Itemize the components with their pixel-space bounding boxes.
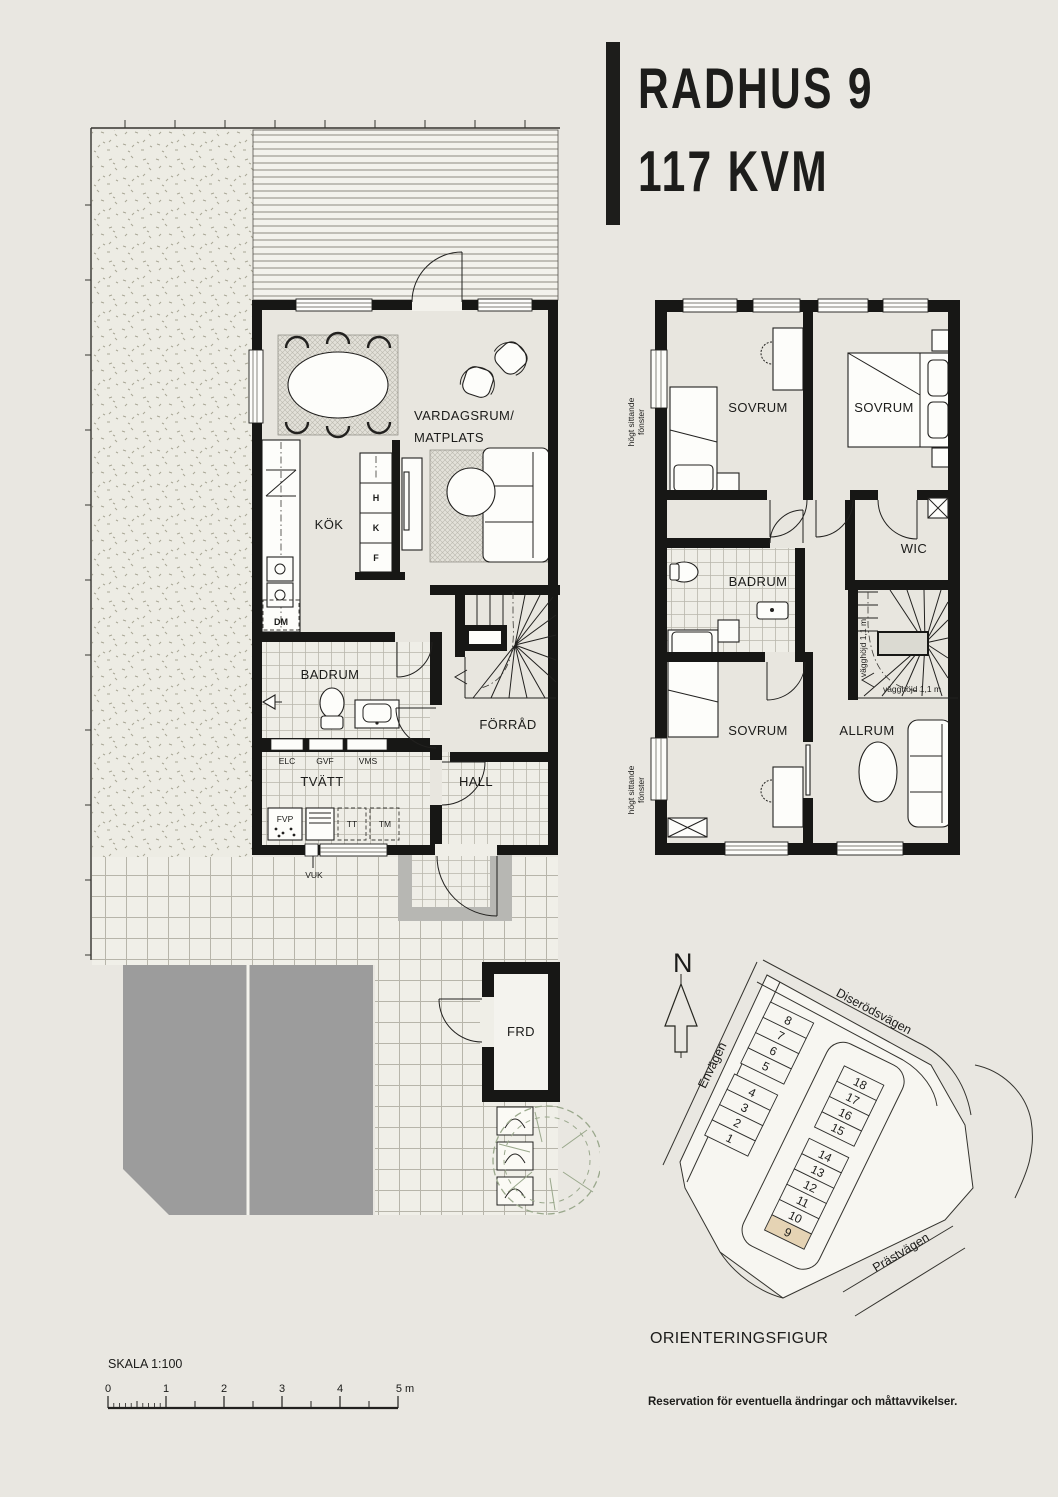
svg-text:högt sittande: högt sittande: [626, 397, 636, 446]
label-wall-height-1: vägghöjd 1,1 m: [858, 619, 868, 677]
north-arrow: N: [665, 948, 697, 1058]
label-storage: FÖRRÅD: [479, 717, 536, 732]
shaft-box: [928, 498, 948, 518]
garden-area: [92, 130, 253, 857]
label-cabinet-f: F: [373, 553, 379, 563]
page-title-line1: RADHUS 9: [638, 55, 874, 121]
label-bedroom-tr: SOVRUM: [854, 400, 913, 415]
scale-0: 0: [105, 1383, 111, 1395]
scale-bar: SKALA 1:100 0 1 2 3 4 5 m: [100, 1346, 430, 1421]
tv-bench: [402, 458, 422, 550]
label-laundry: TVÄTT: [300, 774, 343, 789]
label-high-window-1: högt sittande fönster: [626, 397, 646, 446]
page-title-line2: 117 KVM: [638, 138, 829, 204]
label-dining: MATPLATS: [414, 430, 484, 445]
scale-1: 1: [163, 1383, 169, 1395]
upper-toilet: [670, 562, 698, 582]
title-accent-bar: [606, 42, 620, 225]
label-living-room: VARDAGSRUM/: [414, 408, 514, 423]
orientation-caption: ORIENTERINGSFIGUR: [650, 1330, 828, 1348]
scale-ruler: [108, 1396, 398, 1408]
disclaimer-text: Reservation för eventuella ändringar och…: [648, 1396, 957, 1408]
bathroom-sink: [355, 700, 399, 728]
floorplan-sheet: RADHUS 9 117 KVM: [0, 0, 1058, 1497]
sofa-group: [430, 448, 549, 562]
label-cabinet-k: K: [373, 523, 380, 533]
svg-text:fönster: fönster: [636, 409, 646, 435]
svg-text:högt sittande: högt sittande: [626, 765, 636, 814]
label-bedroom-tl: SOVRUM: [728, 400, 787, 415]
hall-floor: [442, 752, 548, 845]
label-wic: WIC: [901, 541, 927, 556]
oval-table: [859, 742, 897, 802]
label-kitchen: KÖK: [315, 517, 344, 532]
high-window-top: [651, 350, 667, 408]
scale-4: 4: [337, 1383, 343, 1395]
deck-terrace: [253, 130, 558, 300]
scale-5m: 5 m: [396, 1383, 414, 1395]
svg-text:fönster: fönster: [636, 777, 646, 803]
label-tm: TM: [379, 819, 391, 829]
entry-porch: [398, 855, 512, 921]
label-dishwasher: DM: [274, 617, 288, 627]
upper-floor-plan: SOVRUM SOVRUM WIC BADRUM SOVRUM ALLRUM h…: [620, 290, 975, 870]
label-wall-height-2: vägghöjd 1,1 m: [883, 684, 941, 694]
bathroom-floor: [262, 642, 430, 738]
label-vms: VMS: [359, 756, 378, 766]
scale-3: 3: [279, 1383, 285, 1395]
label-frd: FRD: [507, 1024, 535, 1039]
fvp-unit: [268, 808, 302, 840]
orientation-figure: N 1 2 3 4: [635, 930, 1055, 1340]
toilet: [320, 688, 344, 729]
label-hall: HALL: [459, 774, 493, 789]
label-allrum: ALLRUM: [839, 723, 894, 738]
label-vuk: VUK: [305, 870, 323, 880]
technical-cabinets: [271, 739, 387, 750]
kitchen-window: [249, 350, 263, 423]
label-fvp: FVP: [277, 814, 294, 824]
label-elc: ELC: [279, 756, 296, 766]
north-label: N: [673, 948, 693, 978]
high-window-bottom: [651, 738, 667, 800]
sliding-door: [806, 745, 810, 795]
label-gvf: GVF: [316, 756, 333, 766]
vuk-hatch: [305, 844, 318, 856]
dining-set: [278, 333, 398, 437]
coffee-table: [447, 468, 495, 516]
label-cabinet-h: H: [373, 493, 380, 503]
label-bathroom: BADRUM: [301, 667, 360, 682]
wardrobe-box: [668, 818, 707, 837]
label-bedroom-bottom: SOVRUM: [728, 723, 787, 738]
label-upper-bathroom: BADRUM: [729, 574, 788, 589]
scale-label: SKALA 1:100: [108, 1357, 182, 1371]
label-tt: TT: [347, 819, 357, 829]
label-high-window-2: högt sittande fönster: [626, 765, 646, 814]
ground-floor-plan: VARDAGSRUM/ MATPLATS KÖK H K F DM BADRUM…: [85, 120, 600, 1230]
upper-sink: [757, 602, 788, 619]
parking-spaces: [123, 965, 373, 1215]
scale-2: 2: [221, 1383, 227, 1395]
kitchen-counter: [262, 440, 300, 632]
